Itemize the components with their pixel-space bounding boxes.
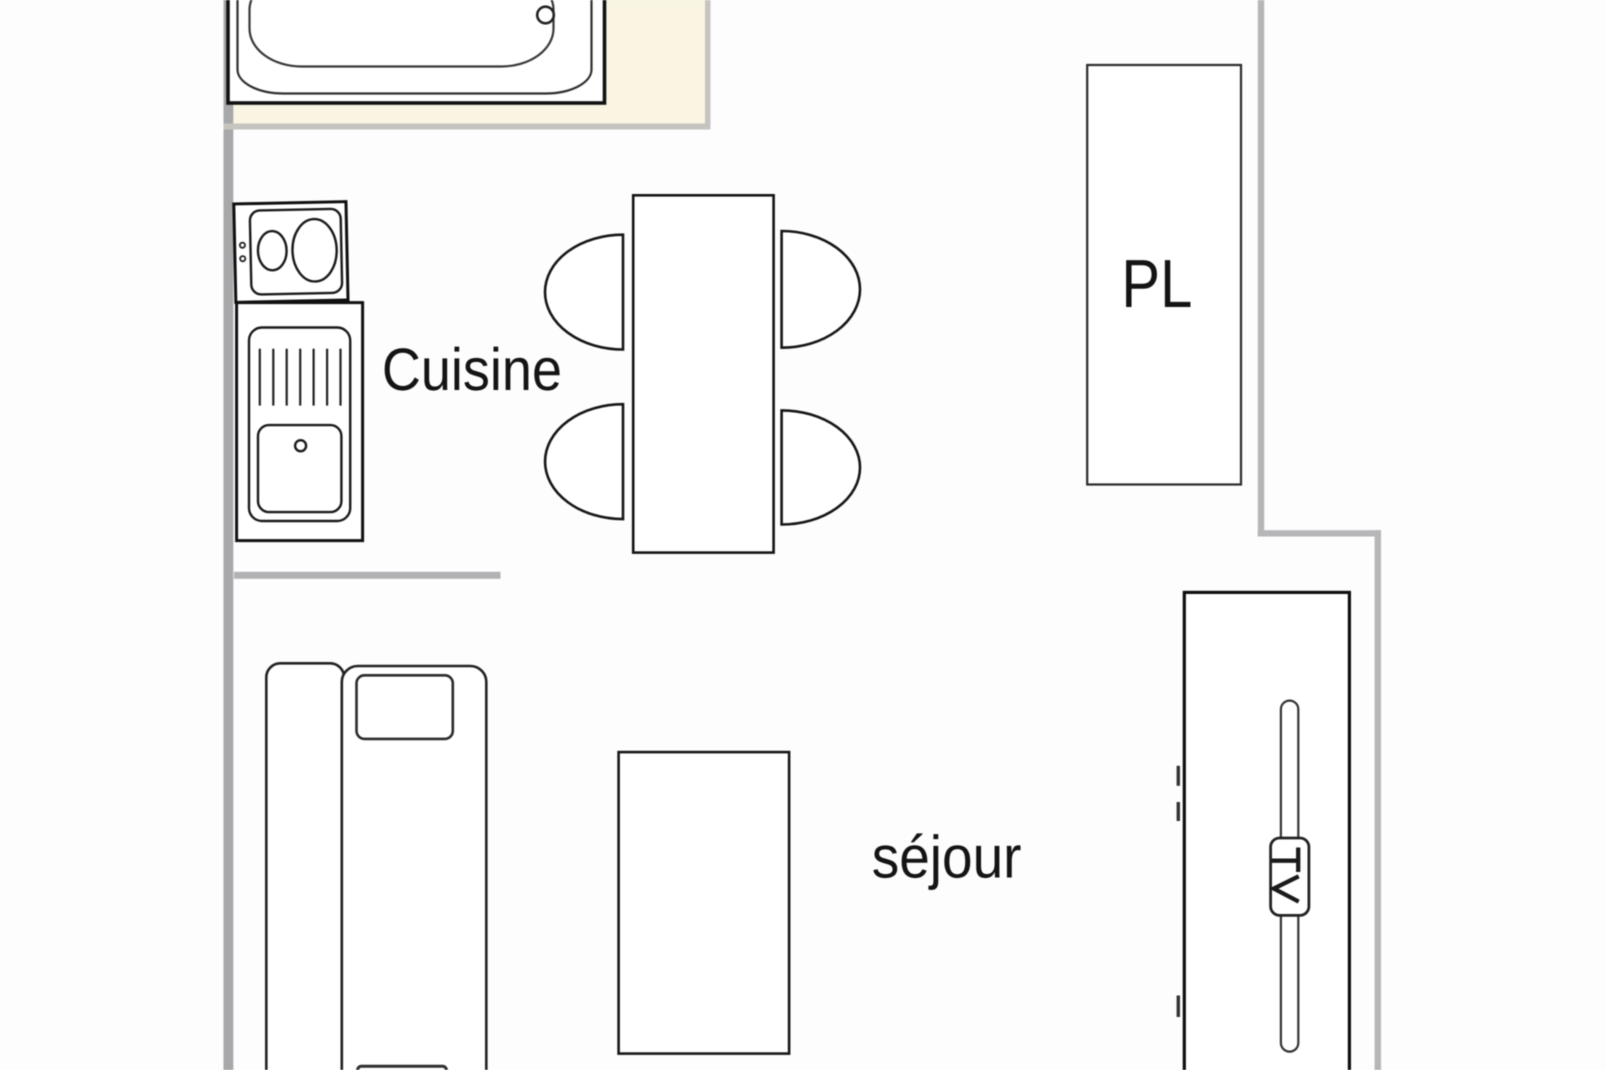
- svg-text:Cuisine: Cuisine: [382, 337, 562, 404]
- svg-text:PL: PL: [1121, 246, 1192, 322]
- svg-text:séjour: séjour: [872, 823, 1022, 891]
